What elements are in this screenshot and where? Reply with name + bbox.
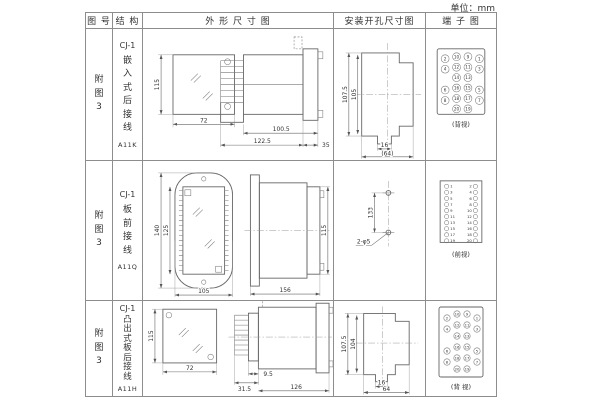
terminal-number: 13	[465, 75, 471, 80]
row2-install-cell: 133 2-φ5	[334, 161, 426, 301]
terminal-circle	[473, 227, 477, 231]
terminal-number: 2	[444, 56, 447, 61]
terminal-number: 8	[444, 98, 447, 103]
terminal-circle	[473, 190, 477, 194]
terminal-circle	[445, 208, 449, 212]
row2-terminal-cell: (前视) 1234567891011121314151617181920	[426, 161, 496, 301]
terminal-number: 8	[469, 203, 472, 207]
terminal-number: 13	[450, 221, 455, 225]
terminal-number: 18	[467, 233, 472, 237]
terminal-number: 4	[469, 191, 472, 195]
terminal-number: 17	[465, 355, 470, 360]
terminal-number: 5	[478, 88, 481, 93]
dim-hole-spacing: 133	[368, 207, 375, 219]
dim-front-width: 105	[198, 288, 210, 295]
terminal-number: 17	[465, 96, 471, 101]
terminal-number: 19	[465, 106, 471, 111]
terminal-number: 4	[446, 326, 449, 331]
dim-step-depth: 9.5	[263, 371, 273, 378]
terminal-number: 20	[467, 239, 472, 243]
terminal-number: 3	[450, 191, 453, 195]
dim-cutout-width: 64	[383, 386, 391, 393]
row3-fig-no-cell: 附图3	[86, 301, 113, 396]
terminal-number: 9	[450, 209, 453, 213]
spec-table: 图 号 结 构 外 形 尺 寸 图 安装开孔尺寸图 端 子 图 附图3 CJ-1…	[85, 12, 497, 397]
terminal-number: 15	[465, 344, 470, 349]
terminal-number: 2	[446, 315, 449, 320]
terminal-view-label: (前视)	[452, 249, 470, 258]
row1-install-cell: 107.5 105 16 (64)	[334, 29, 426, 161]
fig-no-label: 附图3	[94, 74, 104, 115]
row2-outline-cell: 140 125 105	[143, 161, 334, 301]
row1-terminal-cell: (背视) 2109141211314136161558181772019	[426, 29, 496, 161]
terminal-number: 16	[455, 344, 460, 349]
dim-side-height: 115	[321, 225, 328, 237]
dim-front-width: 72	[186, 365, 194, 372]
header-cell-outline: 外 形 尺 寸 图	[143, 13, 334, 29]
terminal-circle	[445, 202, 449, 206]
terminal-circle	[473, 202, 477, 206]
dim-front-height: 115	[148, 330, 155, 342]
dim-outer-height: 107.5	[342, 86, 349, 103]
terminal-number: 15	[450, 227, 455, 231]
terminal-number: 15	[465, 86, 471, 91]
dim-front-width: 72	[200, 117, 208, 124]
dim-front-height: 115	[154, 79, 161, 91]
fig-no-label: 附图3	[94, 328, 104, 369]
terminal-number: 10	[455, 311, 460, 316]
terminal-number: 20	[454, 106, 460, 111]
terminal-circle	[473, 208, 477, 212]
structure-desc: 嵌入式后接线	[123, 55, 133, 136]
terminal-number: 10	[467, 209, 472, 213]
row3-install-drawing: 107.5 104 16 64	[334, 301, 425, 396]
row3-outline-cell: 115 72 9	[143, 301, 334, 396]
terminal-number: 16	[467, 227, 472, 231]
row3-outline-drawing: 115 72 9	[143, 301, 333, 396]
terminal-circle	[445, 221, 449, 225]
terminal-number: 7	[478, 98, 481, 103]
row1-outline-drawing: 115 72 1	[143, 29, 333, 160]
dim-flange-depth: 35	[322, 142, 330, 149]
terminal-number: 14	[467, 221, 472, 225]
terminal-number: 7	[450, 203, 453, 207]
terminal-number: 17	[450, 233, 455, 237]
dim-body-depth: 126	[291, 384, 303, 391]
terminal-number: 6	[469, 197, 472, 201]
row1-install-drawing: 107.5 105 16 (64)	[334, 29, 425, 160]
terminal-number: 8	[446, 359, 449, 364]
terminal-number: 5	[450, 197, 453, 201]
terminal-number: 14	[455, 333, 460, 338]
terminal-circle	[473, 184, 477, 188]
terminal-circle	[445, 233, 449, 237]
dim-depth-body: 100.5	[273, 126, 290, 133]
dim-front-outer-height: 140	[154, 225, 161, 237]
dim-depth-total: 122.5	[254, 138, 271, 145]
row3-terminal-cell: (背 视) 2109141211314136161558181772019	[426, 301, 496, 396]
row3-terminal-diagram: (背 视) 2109141211314136161558181772019	[426, 301, 496, 396]
row1-outline-cell: 115 72 1	[143, 29, 334, 161]
terminal-number: 18	[455, 355, 460, 360]
terminal-circle	[445, 196, 449, 200]
structure-desc: 板前接线	[123, 204, 133, 258]
terminal-number: 1	[450, 185, 453, 189]
terminal-number: 10	[454, 54, 460, 59]
terminal-number: 14	[454, 75, 460, 80]
terminal-circle	[473, 233, 477, 237]
dim-tab-width: 16	[381, 142, 389, 149]
dim-stem-depth: 31.5	[238, 386, 251, 393]
terminal-circle	[473, 215, 477, 219]
terminal-number: 1	[478, 56, 481, 61]
terminal-number: 6	[446, 348, 449, 353]
row2-terminal-diagram: (前视) 1234567891011121314151617181920	[426, 161, 496, 300]
terminal-number: 11	[450, 215, 455, 219]
terminal-number: 12	[454, 65, 460, 70]
row1-structure-cell: CJ-1 嵌入式后接线 A11K	[113, 29, 143, 161]
terminal-number: 18	[454, 96, 460, 101]
dim-depth: 156	[279, 287, 291, 294]
front-view: 140 125 105	[154, 173, 232, 297]
terminal-circle	[445, 190, 449, 194]
front-view: 115 72	[154, 55, 234, 127]
side-view: 9.5 31.5 126	[229, 301, 333, 393]
row1-terminal-diagram: (背视) 2109141211314136161558181772019	[426, 29, 496, 160]
model-label: CJ-1	[120, 41, 136, 50]
terminal-number: 2	[469, 185, 472, 189]
dim-outer-height: 107.5	[341, 335, 348, 352]
terminal-number: 9	[466, 311, 469, 316]
terminal-circle	[473, 196, 477, 200]
terminal-view-label: (背视)	[452, 119, 470, 128]
row2-fig-no-cell: 附图3	[86, 161, 113, 301]
terminal-circle	[473, 221, 477, 225]
side-view: 156 115	[244, 175, 329, 296]
terminal-number: 12	[455, 322, 460, 327]
terminal-number: 9	[467, 54, 470, 59]
row2-structure-cell: CJ-1 板前接线 A11Q	[113, 161, 143, 301]
terminal-number: 20	[455, 366, 460, 371]
dim-front-inner-height: 125	[163, 225, 170, 237]
terminal-number: 6	[444, 88, 447, 93]
terminal-number: 4	[444, 67, 447, 72]
header-cell-terminal: 端 子 图	[426, 13, 496, 29]
terminal-circle	[445, 215, 449, 219]
terminal-number: 13	[465, 333, 470, 338]
terminal-number: 19	[450, 239, 455, 243]
row3-install-cell: 107.5 104 16 64	[334, 301, 426, 396]
row2-install-drawing: 133 2-φ5	[334, 161, 425, 300]
terminal-number: 11	[465, 322, 470, 327]
terminal-number: 3	[476, 326, 479, 331]
hole-size-label: 2-φ5	[357, 238, 371, 245]
terminal-number: 1	[476, 315, 479, 320]
terminal-number: 3	[478, 67, 481, 72]
terminal-number: 12	[467, 215, 472, 219]
structure-desc: 凸出式板后接线	[123, 316, 132, 383]
side-view: 100.5 122.5 35	[221, 37, 330, 149]
row2-outline-drawing: 140 125 105	[143, 161, 333, 300]
terminal-number: 7	[476, 359, 479, 364]
terminal-number: 5	[476, 348, 479, 353]
terminal-circle	[445, 227, 449, 231]
terminal-circle	[445, 184, 449, 188]
terminal-view-label: (背 视)	[451, 382, 471, 391]
dim-inner-height: 104	[350, 338, 357, 350]
row3-structure-cell: CJ-1 凸出式板后接线 A11H	[113, 301, 143, 396]
terminal-number: 11	[465, 65, 471, 70]
front-view: 115 72	[148, 309, 217, 375]
model-label: CJ-1	[120, 190, 136, 199]
model-code: A11Q	[118, 263, 138, 271]
fig-no-label: 附图3	[94, 210, 104, 251]
model-label: CJ-1	[120, 304, 136, 313]
header-cell-structure: 结 构	[113, 13, 143, 29]
terminal-number: 19	[465, 366, 470, 371]
model-code: A11K	[118, 141, 137, 149]
header-cell-fig-no: 图 号	[86, 13, 113, 29]
model-code: A11H	[118, 385, 138, 393]
header-cell-install: 安装开孔尺寸图	[334, 13, 426, 29]
terminal-number: 16	[454, 86, 460, 91]
row1-fig-no-cell: 附图3	[86, 29, 113, 161]
dim-inner-height: 105	[351, 89, 358, 101]
dim-cutout-width: (64)	[381, 150, 393, 157]
